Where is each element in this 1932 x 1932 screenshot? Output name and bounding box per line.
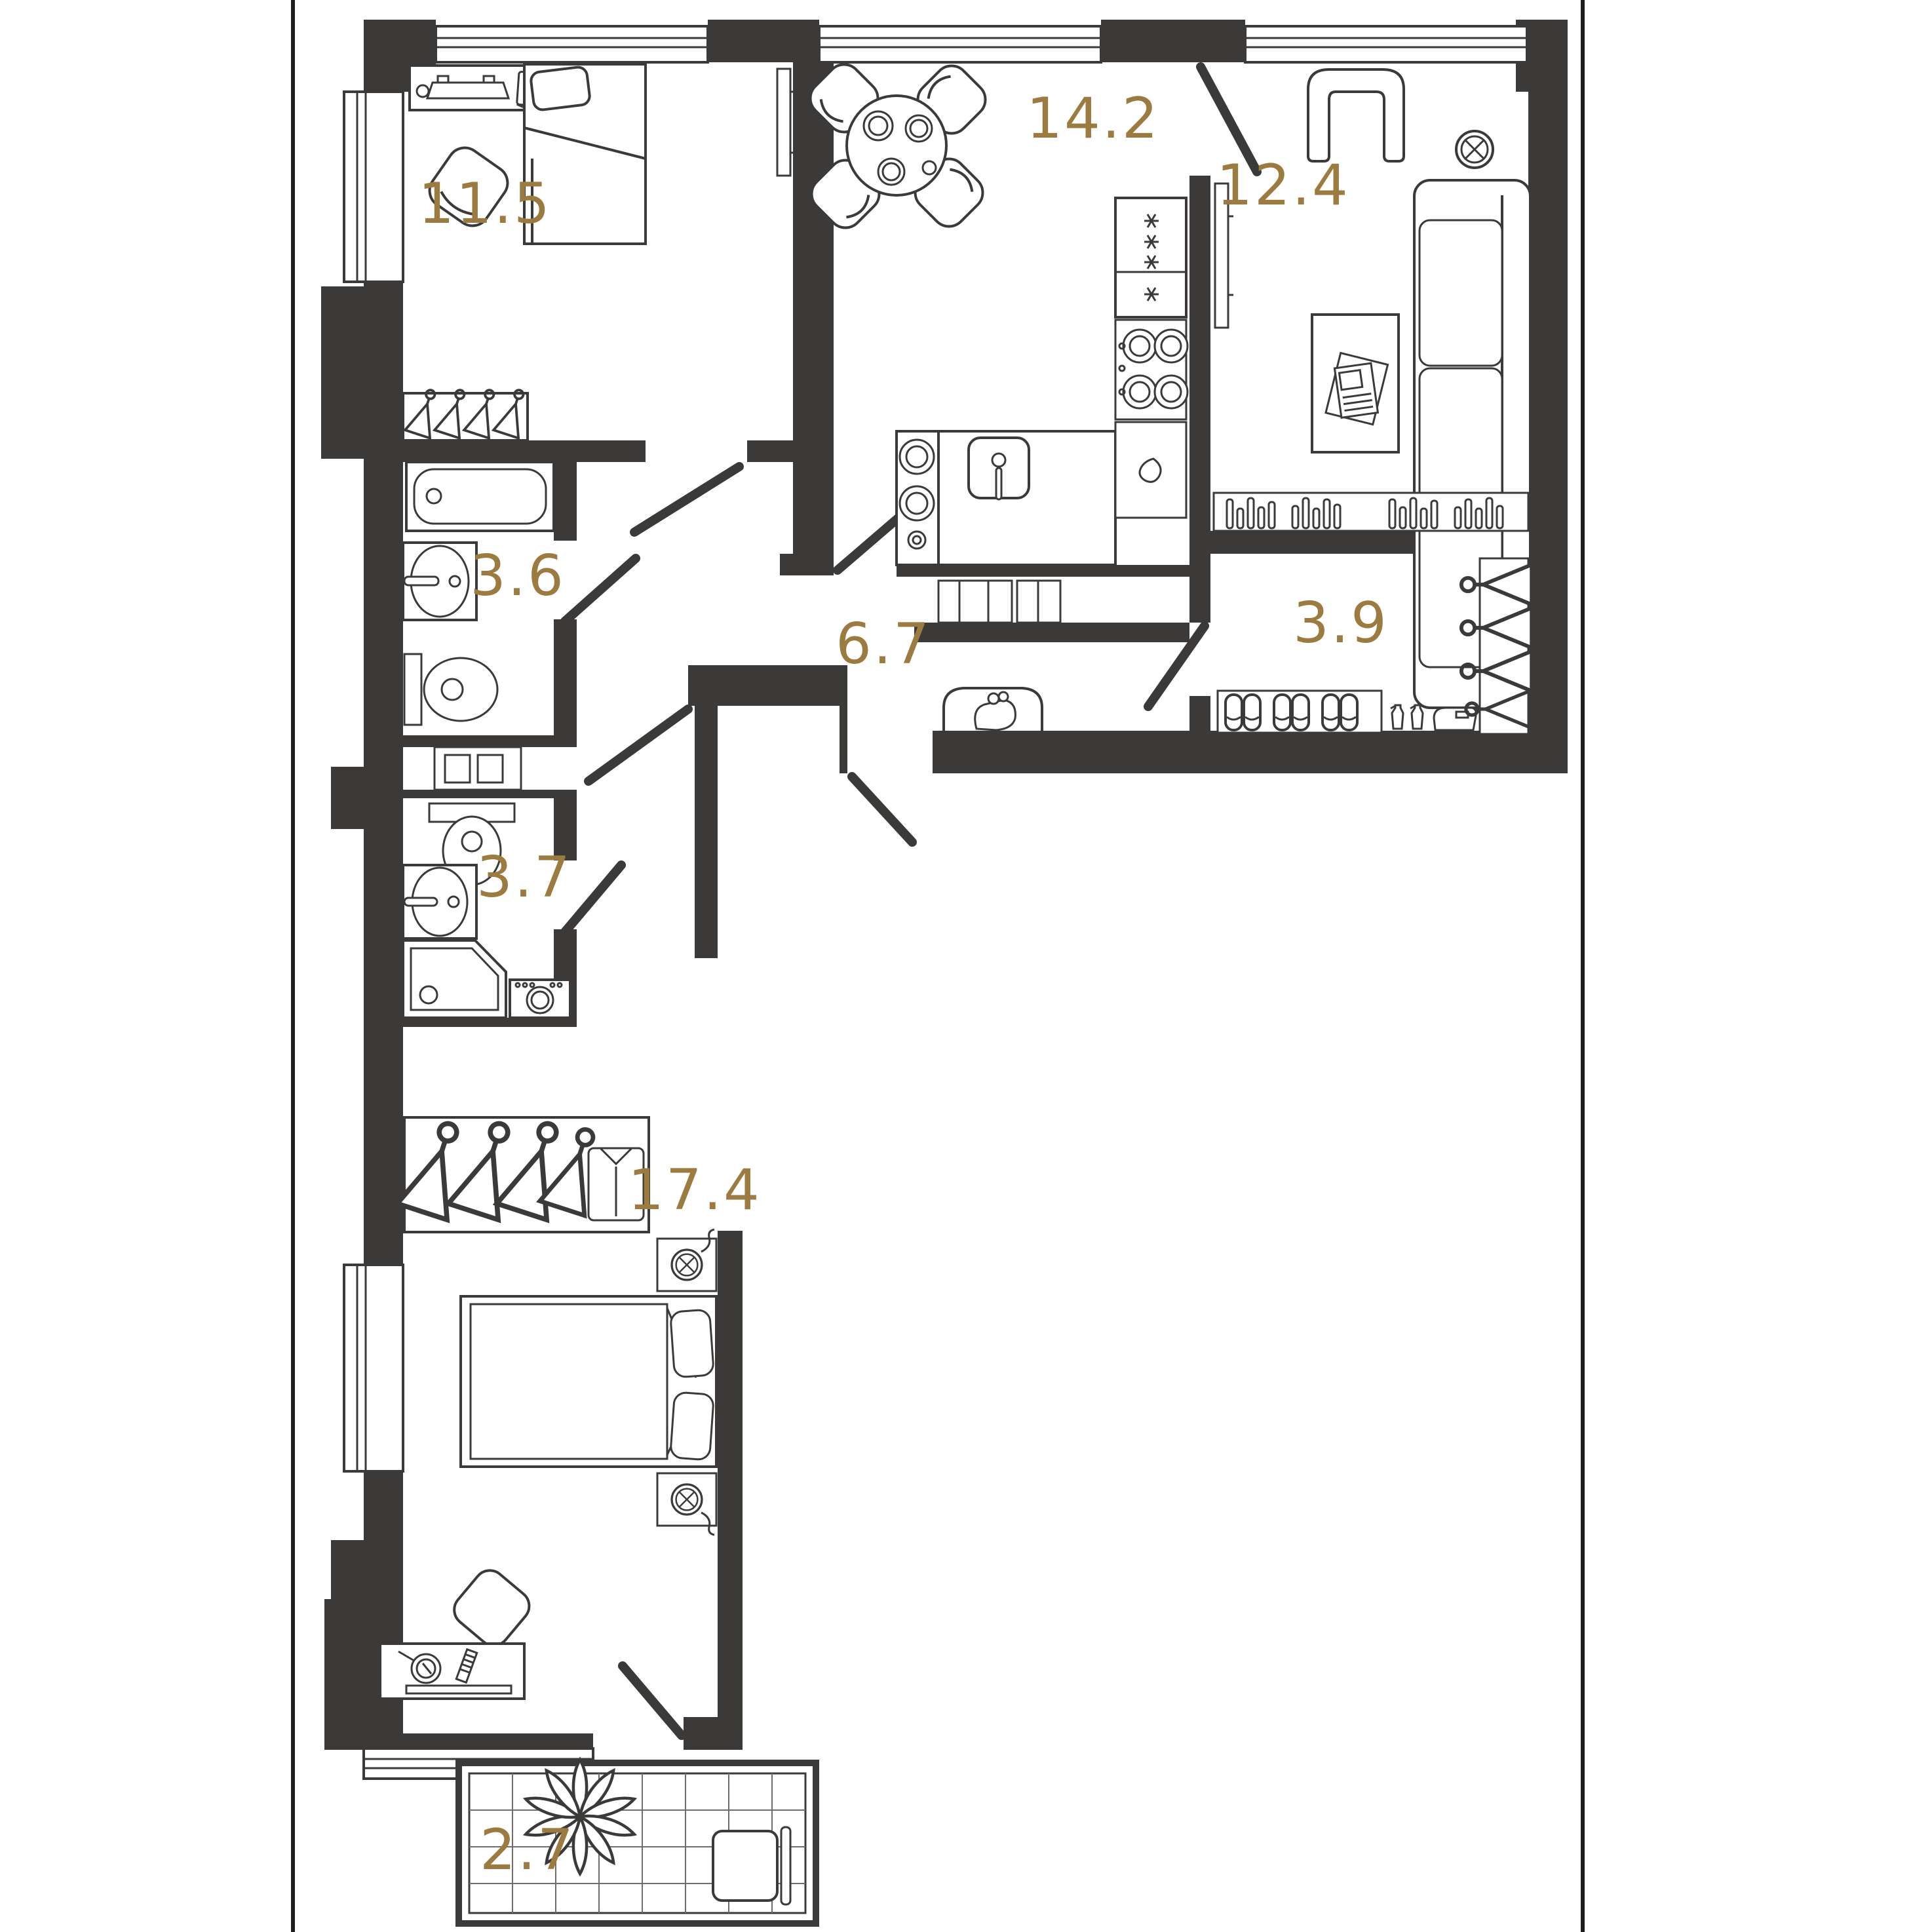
bathroom1-door-icon xyxy=(565,558,636,621)
vanity-chair-icon xyxy=(448,1564,535,1652)
corner-shower-icon xyxy=(403,940,506,1018)
room-label-bathroom-2: 3.7 xyxy=(476,845,572,910)
room-bedroom-1 xyxy=(403,64,795,440)
slipper-shelf-icon xyxy=(1218,691,1381,733)
balcony-door-icon xyxy=(623,1666,682,1735)
pillow-icon xyxy=(670,1309,714,1378)
room-label-bedroom-2: 17.4 xyxy=(628,1157,761,1223)
room-label-hallway: 6.7 xyxy=(836,611,931,677)
washbasin-icon xyxy=(403,543,476,620)
hob-icon xyxy=(1115,320,1188,419)
pillow-icon xyxy=(670,1392,714,1460)
window-kitchen-top xyxy=(819,26,1101,62)
bathtub-icon xyxy=(406,462,554,531)
bedroom2-wardrobe-icon xyxy=(397,1116,649,1232)
bedroom1-wardrobe-icon xyxy=(403,386,533,440)
iron-icon xyxy=(1434,708,1476,730)
nightstand-icon xyxy=(657,1473,716,1535)
dressing-table-icon xyxy=(380,1644,524,1699)
bench-icon xyxy=(944,688,1042,731)
room-label-living-room: 12.4 xyxy=(1216,153,1349,218)
right-boundary-line xyxy=(1581,0,1585,1932)
armchair-icon xyxy=(1308,69,1404,161)
sink-cabinet-icon xyxy=(1115,422,1186,518)
shaft-cabinet-icon xyxy=(435,747,521,790)
room-label-bedroom-1: 11.5 xyxy=(418,171,551,237)
tv-icon xyxy=(777,69,795,176)
floor-plan: 11.5 14.2 12.4 3.6 6.7 3.9 3.7 17.4 2.7 xyxy=(0,0,1932,1932)
bedroom1-door-icon xyxy=(634,467,739,532)
round-table-icon xyxy=(847,96,946,195)
window-bedroom1-left xyxy=(344,92,403,282)
window-bedroom2-left xyxy=(344,1265,403,1471)
kitchen-sink-icon xyxy=(969,438,1029,499)
room-bathroom-2 xyxy=(403,803,570,1018)
washbasin-icon xyxy=(403,865,476,938)
window-living-top xyxy=(1245,26,1527,62)
bookshelf-icon xyxy=(1214,493,1528,531)
left-boundary-line xyxy=(291,0,295,1932)
corridor-door-icon xyxy=(589,709,688,781)
room-hallway xyxy=(944,688,1042,731)
room-label-kitchen-dining: 14.2 xyxy=(1026,86,1159,151)
double-bed-icon xyxy=(461,1296,716,1467)
room-label-balcony: 2.7 xyxy=(480,1817,575,1883)
counter-cabinets-icon xyxy=(897,565,1189,623)
room-label-bathroom-1: 3.6 xyxy=(470,543,566,609)
spray-bottle-icon xyxy=(1391,705,1403,729)
entrance-door-icon xyxy=(852,777,912,842)
washing-machine-icon xyxy=(510,980,570,1018)
room-label-wardrobe: 3.9 xyxy=(1293,590,1389,656)
ceiling-lamp-icon xyxy=(1456,131,1493,168)
spray-bottle-icon xyxy=(1410,705,1423,729)
window-bedroom1-top xyxy=(436,26,708,62)
coffee-table-icon xyxy=(1312,315,1399,452)
fridge-icon xyxy=(1115,198,1186,317)
bathroom2-door-icon xyxy=(565,865,621,932)
toilet-icon xyxy=(404,654,497,725)
nightstand-icon xyxy=(657,1229,716,1291)
